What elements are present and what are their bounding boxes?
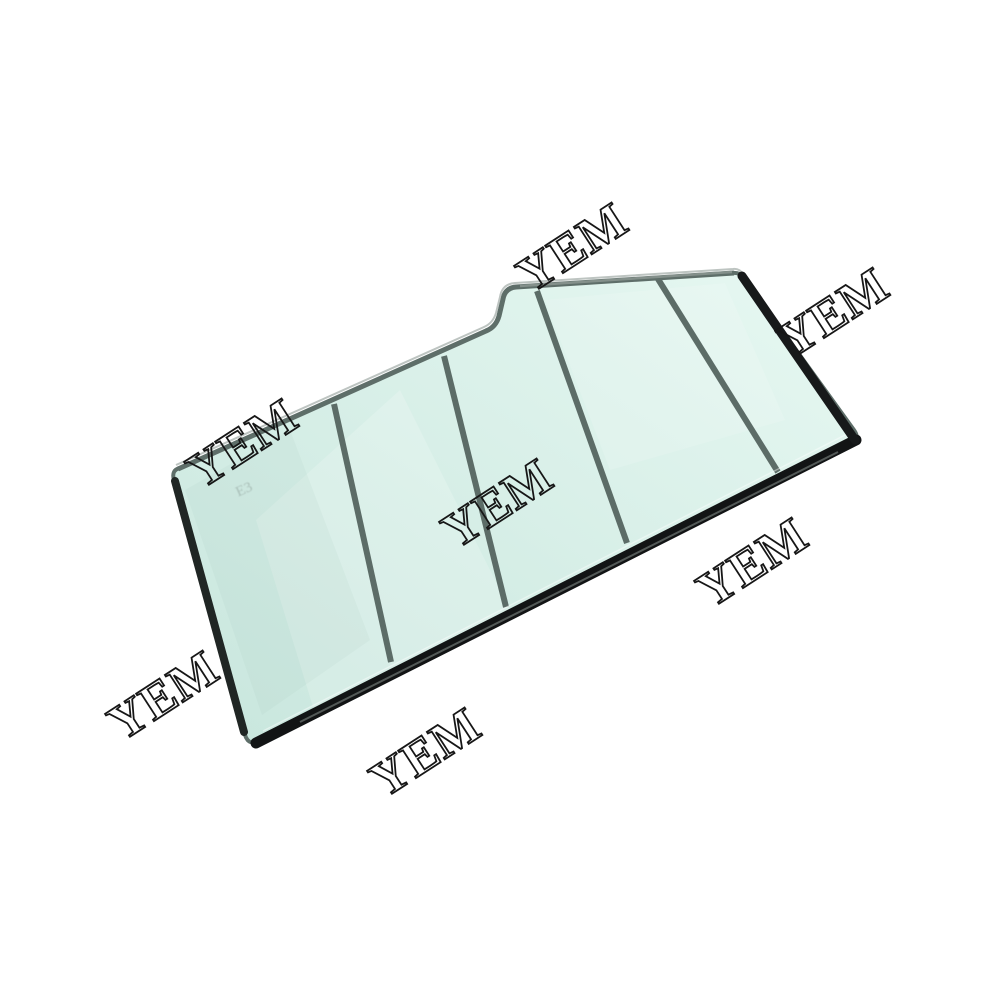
product-photo: E3 YEMYEMYEMYEMYEMYEMYEM	[0, 0, 1000, 1000]
glass-panel-graphic: E3	[0, 0, 1000, 1000]
